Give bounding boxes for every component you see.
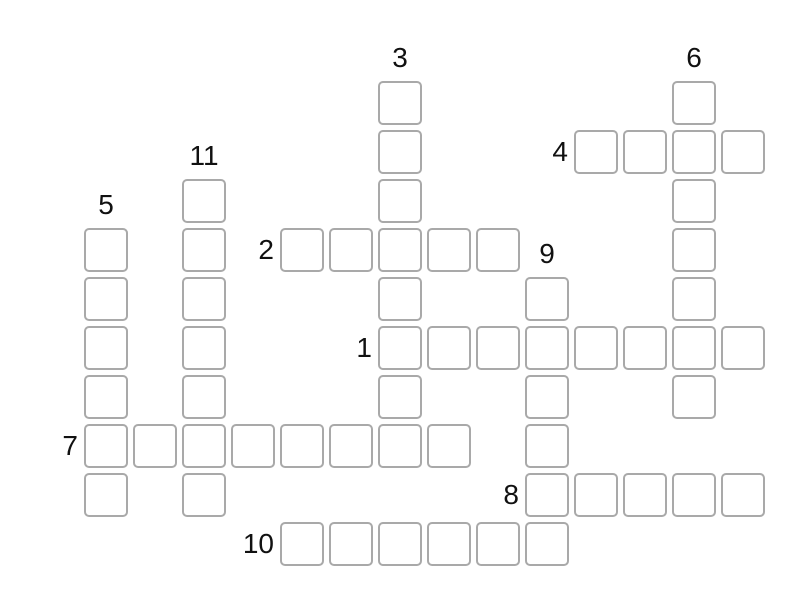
crossword-cell[interactable] — [721, 326, 765, 370]
crossword-cell[interactable] — [280, 228, 324, 272]
clue-number-7: 7 — [0, 429, 78, 463]
crossword-cell[interactable] — [672, 228, 716, 272]
crossword-cell[interactable] — [84, 228, 128, 272]
crossword-cell[interactable] — [329, 228, 373, 272]
crossword-cell[interactable] — [182, 326, 226, 370]
crossword-cell[interactable] — [525, 424, 569, 468]
crossword-cell[interactable] — [427, 228, 471, 272]
crossword-cell[interactable] — [721, 473, 765, 517]
crossword-cell[interactable] — [84, 326, 128, 370]
crossword-cell[interactable] — [378, 81, 422, 125]
crossword-cell[interactable] — [672, 130, 716, 174]
crossword-cell[interactable] — [623, 473, 667, 517]
crossword-cell[interactable] — [280, 522, 324, 566]
crossword-cell[interactable] — [476, 326, 520, 370]
crossword-cell[interactable] — [574, 473, 618, 517]
crossword-cell[interactable] — [231, 424, 275, 468]
crossword-cell[interactable] — [476, 522, 520, 566]
crossword-cell[interactable] — [574, 326, 618, 370]
crossword-cell[interactable] — [378, 326, 422, 370]
crossword-cell[interactable] — [329, 424, 373, 468]
crossword-cell[interactable] — [84, 473, 128, 517]
crossword-cell[interactable] — [378, 130, 422, 174]
crossword-cell[interactable] — [329, 522, 373, 566]
crossword-cell[interactable] — [623, 326, 667, 370]
crossword-cell[interactable] — [525, 522, 569, 566]
crossword-cell[interactable] — [525, 326, 569, 370]
crossword-cell[interactable] — [182, 424, 226, 468]
crossword-cell[interactable] — [427, 424, 471, 468]
crossword-cell[interactable] — [525, 473, 569, 517]
crossword-cell[interactable] — [672, 375, 716, 419]
clue-number-6: 6 — [652, 41, 736, 75]
crossword-cell[interactable] — [672, 277, 716, 321]
crossword-cell[interactable] — [427, 326, 471, 370]
crossword-cell[interactable] — [84, 277, 128, 321]
crossword-cell[interactable] — [574, 130, 618, 174]
crossword-cell[interactable] — [378, 179, 422, 223]
clue-number-3: 3 — [358, 41, 442, 75]
crossword-cell[interactable] — [672, 326, 716, 370]
crossword-cell[interactable] — [378, 375, 422, 419]
crossword-cell[interactable] — [182, 277, 226, 321]
crossword-cell[interactable] — [672, 179, 716, 223]
clue-number-10: 10 — [190, 527, 274, 561]
crossword-cell[interactable] — [84, 424, 128, 468]
crossword-cell[interactable] — [182, 228, 226, 272]
crossword-cell[interactable] — [623, 130, 667, 174]
clue-number-9: 9 — [505, 237, 589, 271]
crossword-cell[interactable] — [378, 277, 422, 321]
clue-number-4: 4 — [484, 135, 568, 169]
crossword-cell[interactable] — [84, 375, 128, 419]
crossword-cell[interactable] — [721, 130, 765, 174]
crossword-cell[interactable] — [133, 424, 177, 468]
crossword-cell[interactable] — [672, 473, 716, 517]
clue-number-11: 11 — [162, 139, 246, 173]
crossword-cell[interactable] — [378, 522, 422, 566]
crossword-cell[interactable] — [280, 424, 324, 468]
clue-number-8: 8 — [435, 478, 519, 512]
crossword-cell[interactable] — [182, 473, 226, 517]
crossword-cell[interactable] — [182, 179, 226, 223]
crossword-cell[interactable] — [427, 522, 471, 566]
crossword-cell[interactable] — [525, 375, 569, 419]
crossword-cell[interactable] — [672, 81, 716, 125]
crossword-cell[interactable] — [378, 228, 422, 272]
crossword-grid: 1234567891011 — [0, 0, 800, 600]
crossword-cell[interactable] — [525, 277, 569, 321]
clue-number-1: 1 — [288, 331, 372, 365]
crossword-cell[interactable] — [378, 424, 422, 468]
crossword-cell[interactable] — [182, 375, 226, 419]
clue-number-5: 5 — [64, 188, 148, 222]
